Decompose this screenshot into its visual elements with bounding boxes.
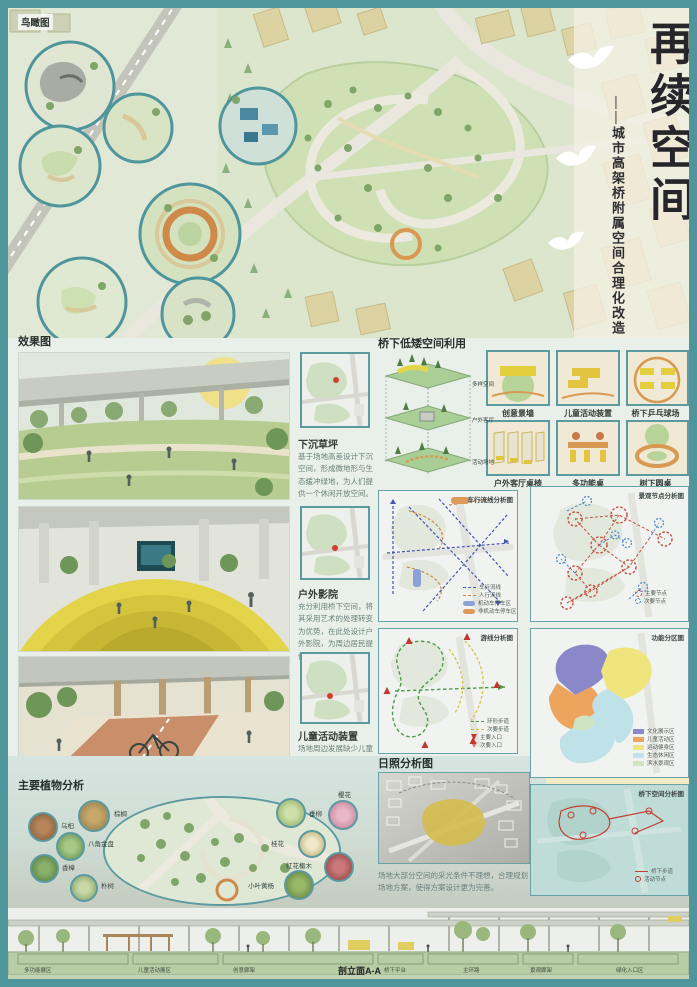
map1-legend-1: 车行流线 [479,583,501,591]
legend-node-red-icon [635,590,642,597]
poster-canvas: 鸟瞰图 再续空间 ——城市高架桥附属空间合理化改造 效果图 [8,8,689,979]
plant-label-tallow: 乌桕 [61,820,74,830]
elevation-segment-7: 绿化入口区 [616,966,644,974]
plant-label-loropetalum: 红花檵木 [286,860,312,870]
legend-zone-orange-icon [633,737,644,742]
map1-legend-4: 非机动车停车区 [478,607,517,615]
plant-label-hackberry: 朴树 [101,880,114,890]
plant-label-camphor: 香樟 [62,862,75,872]
elevation-segment-6: 景观廊架 [530,966,552,974]
legend-zone-cyan-icon [633,753,644,758]
legend-pill-orange-icon [463,609,475,614]
elevation-segment-5: 主环路 [463,966,480,974]
map5-legend-2: 活动节点 [644,875,666,883]
under-bridge-section-label: 桥下低矮空间利用 [378,338,466,351]
map5-legend: 桥下步道 活动节点 [635,867,673,883]
map-functional-zoning: 功能分区图 文化展示区 儿童活动区 运动健身区 生态休闲区 滨水景观区 [530,628,689,778]
map-landscape-nodes: 景观节点分析图 主要节点 次要节点 [530,486,689,622]
ub-thumb-tree-table [626,420,689,476]
map5-legend-1: 桥下步道 [651,867,673,875]
map3-legend-2: 次要步道 [487,725,509,733]
axon-layer-2-label: 户外客厅 [472,416,494,424]
plant-circle-cherry [328,800,358,830]
map1-legend-3: 机动车停车区 [478,599,511,607]
render-sunken-lawn-locator-map [300,352,370,428]
ub-thumb-multifunction-table [556,420,620,476]
plant-circle-fatsia [56,832,85,861]
legend-dash-blue-icon [463,587,476,588]
ub-thumb-pingpong [626,350,689,406]
ub-caption-3: 桥下乒乓球场 [622,408,689,419]
plant-circle-willow [276,798,306,828]
map3-legend-4: 次要入口 [480,741,502,749]
legend-circle-red-icon [635,876,641,882]
render-outdoor-cinema [18,506,290,652]
map1-legend-2: 人行流线 [479,591,501,599]
legend-dash-green-icon [471,721,484,722]
plant-label-cherry: 樱花 [338,789,351,799]
legend-dash-yellow-icon [471,729,484,730]
map4-legend-5: 滨水景观区 [647,759,675,767]
aerial-view: 鸟瞰图 再续空间 ——城市高架桥附属空间合理化改造 [8,8,689,338]
legend-marker-red-icon [471,734,477,740]
map-visitor-routes: 游线分析图 环形步道 次要步道 主要入口 次要入口 [378,628,518,754]
sunlight-diagram [378,772,530,864]
aerial-label: 鸟瞰图 [18,14,53,30]
map2-title: 景观节点分析图 [639,490,685,500]
plant-circle-tallow [28,812,58,842]
legend-zone-yellow-icon [633,745,644,750]
renders-section-label: 效果图 [18,336,51,349]
legend-pill-blue-icon [463,601,475,606]
plant-circle-hackberry [70,874,98,902]
plant-label-boxwood: 小叶黄杨 [248,880,274,890]
render-outdoor-cinema-locator-map [300,506,370,580]
plant-label-palm: 棕榈 [114,808,127,818]
poster-board: 鸟瞰图 再续空间 ——城市高架桥附属空间合理化改造 效果图 [0,0,697,987]
render-sunken-lawn-title: 下沉草坪 [298,436,338,451]
map3-legend: 环形步道 次要步道 主要入口 次要入口 [471,717,509,749]
render-outdoor-cinema-title: 户外影院 [298,586,338,601]
plant-label-osmanthus: 桂花 [271,838,284,848]
plant-circle-loropetalum [324,852,354,882]
axon-diagram: 多样空间 户外客厅 活动场地 [376,354,484,486]
render-children-title: 儿童活动装置 [298,728,358,743]
plants-section-label: 主要植物分析 [18,780,84,793]
map4-legend-4: 生态休闲区 [647,751,675,759]
map3-legend-3: 主要入口 [480,733,502,741]
map-vehicle-circulation: 车行流线分析图 车行流线 人行流线 机动车停车区 非机动车停车区 [378,490,518,622]
map2-legend-1: 主要节点 [645,589,667,597]
map2-legend: 主要节点 次要节点 [635,589,667,605]
ub-thumb-children-device [556,350,620,406]
map-under-bridge-space: 桥下空间分析图 桥下步道 活动节点 [530,784,689,896]
legend-zone-green-icon [633,761,644,766]
legend-node-blue-icon [635,598,641,604]
elevation-label: 剖立面A-A [338,964,381,977]
axon-layer-1-label: 多样空间 [472,380,494,388]
map2-legend-2: 次要节点 [644,597,666,605]
ub-caption-2: 儿童活动装置 [556,408,620,419]
legend-line-red-icon [635,871,648,872]
sunlight-desc: 场地大部分空间的采光条件不理想，合理规划场地方案，使得方案设计更为完善。 [378,870,534,895]
section-elevation: 多功能展区 儿童活动展区 创意廊架 桥下平台 主环路 景观廊架 绿化入口区 剖立… [8,908,689,979]
ub-thumb-creative-wall [486,350,550,406]
render-children-locator-map [300,652,370,724]
elevation-segment-3: 创意廊架 [233,966,255,974]
map1-legend: 车行流线 人行流线 机动车停车区 非机动车停车区 [463,583,517,615]
map4-legend-2: 儿童活动区 [647,735,675,743]
plant-circle-boxwood [284,870,314,900]
legend-marker-red2-icon [471,742,477,748]
map3-title: 游线分析图 [481,632,514,642]
plant-label-willow: 垂柳 [309,808,322,818]
elevation-segment-4: 桥下平台 [384,966,406,974]
ub-caption-1: 创意景墙 [486,408,550,419]
legend-zone-purple-icon [633,729,644,734]
sunlight-section-label: 日照分析图 [378,758,433,771]
aerial-illustration [8,8,689,338]
map1-title: 车行流线分析图 [468,494,514,504]
poster-subtitle: ——城市高架桥附属空间合理化改造 [608,96,627,336]
map5-title: 桥下空间分析图 [639,788,685,798]
elevation-segment-1: 多功能展区 [24,966,52,974]
legend-dash-orange-icon [463,595,476,596]
map3-legend-1: 环形步道 [487,717,509,725]
plant-circle-palm [78,800,110,832]
render-sunken-lawn [18,352,290,500]
map4-legend-1: 文化展示区 [647,727,675,735]
ub-thumb-outdoor-livingroom [486,420,550,476]
poster-title: 再续空间 [636,20,689,228]
map4-legend: 文化展示区 儿童活动区 运动健身区 生态休闲区 滨水景观区 [633,727,675,767]
elevation-segment-2: 儿童活动展区 [138,966,171,974]
map4-title: 功能分区图 [652,632,685,642]
render-sunken-lawn-desc: 基于场地高差设计下沉空间，形成微地形与生态缓冲绿地，为人们提供一个休闲开放空间。 [298,451,376,501]
plant-circle-camphor [30,854,59,883]
axon-layer-3-label: 活动场地 [472,458,494,466]
plant-label-fatsia: 八角金盘 [88,838,114,848]
plant-circle-osmanthus [298,830,326,858]
map4-legend-3: 运动健身区 [647,743,675,751]
